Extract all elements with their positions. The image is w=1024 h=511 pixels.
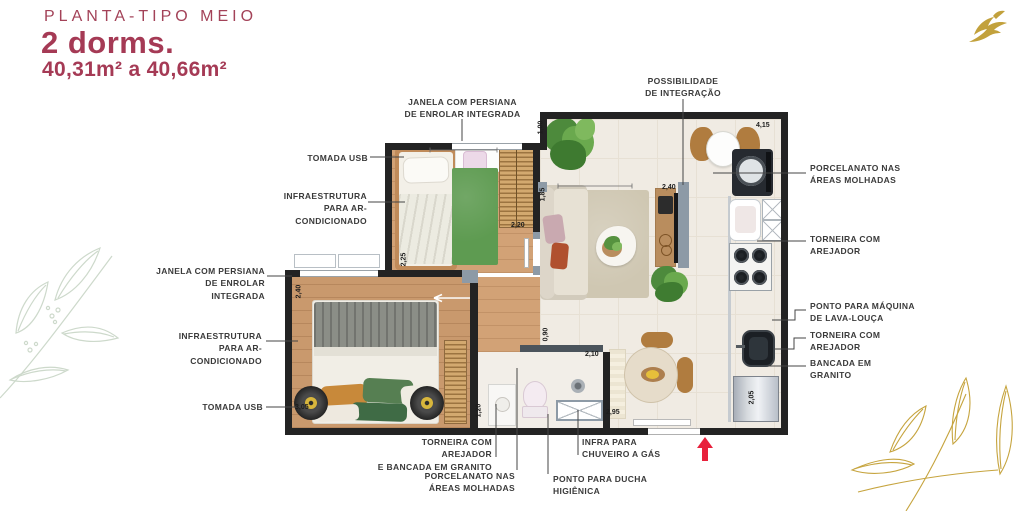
dim-bath-depth: 1,20: [476, 399, 483, 423]
callout-janela-persiana-top: JANELA COM PERSIANA DE ENROLAR INTEGRADA: [400, 96, 525, 121]
dim-bedroom1-depth: 2,25: [401, 248, 408, 272]
dim-bedroom2-width: 3,05: [295, 404, 309, 411]
callout-bancada-granito: BANCADA EM GRANITO: [810, 357, 910, 382]
entrance-arrow-icon: [697, 437, 713, 461]
callout-porcelanato-right: PORCELANATO NAS ÁREAS MOLHADAS: [810, 162, 920, 187]
callout-porcelanato-bottom: PORCELANATO NAS ÁREAS MOLHADAS: [405, 470, 515, 495]
dim-bath-width: 2,10: [585, 351, 599, 358]
dim-balcony-depth: 1,00: [538, 116, 545, 140]
dim-living-width: 4,15: [756, 122, 770, 129]
dim-bedroom2-depth: 2,40: [296, 280, 303, 304]
dim-tv-wall: 2,40: [662, 184, 676, 191]
callout-janela-persiana-left: JANELA COM PERSIANA DE ENROLAR INTEGRADA: [150, 265, 265, 302]
callout-tomada-usb-top: TOMADA USB: [290, 152, 368, 164]
callout-torneira-right-2: TORNEIRA COM AREJADOR: [810, 329, 910, 354]
dim-hall-width: 0,90: [543, 323, 550, 347]
page: PLANTA-TIPO MEIO 2 dorms. 40,31m² a 40,6…: [0, 0, 1024, 511]
dim-bath-outer: 2,95: [606, 409, 620, 416]
callout-torneira-bancada-bottom: TORNEIRA COM AREJADOR E BANCADA EM GRANI…: [370, 436, 492, 473]
callout-infra-ar-left: INFRAESTRUTURA PARA AR-CONDICIONADO: [150, 330, 262, 367]
dim-living-depth: 1,85: [540, 183, 547, 207]
callout-lava-louca: PONTO PARA MÁQUINA DE LAVA-LOUÇA: [810, 300, 925, 325]
callout-torneira-right-1: TORNEIRA COM AREJADOR: [810, 233, 910, 258]
dim-kitchen-wall: 2,05: [749, 386, 756, 410]
callout-infra-ar-top: INFRAESTRUTURA PARA AR-CONDICIONADO: [255, 190, 367, 227]
dim-closet-b1: 2,20: [511, 222, 525, 229]
callout-ducha-higienica: PONTO PARA DUCHA HIGIÊNICA: [553, 473, 663, 498]
callout-tomada-usb-left: TOMADA USB: [185, 401, 263, 413]
callout-possibilidade-integracao: POSSIBILIDADE DE INTEGRAÇÃO: [625, 75, 741, 100]
callout-chuveiro-gas: INFRA PARA CHUVEIRO A GÁS: [582, 436, 677, 461]
